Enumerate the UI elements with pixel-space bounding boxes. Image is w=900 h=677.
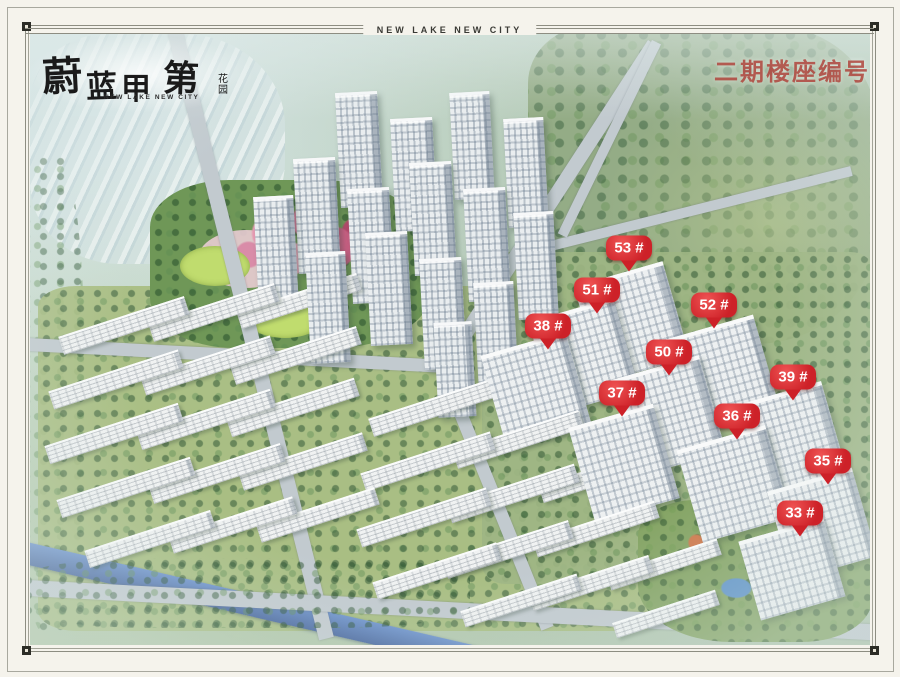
highrise-tower <box>513 211 559 320</box>
logo-suffix: 花园 <box>218 74 230 96</box>
canal-tree-band <box>30 558 470 628</box>
frame-corner-ornament <box>870 646 879 655</box>
aerial-rendering <box>30 34 870 645</box>
legend-title: 二期楼座编号 <box>695 52 870 87</box>
poster-page: 53 #51 #52 #38 #50 #37 #39 #36 #35 #33 #… <box>0 0 900 677</box>
logo-subtitle: NEW LAKE NEW CITY <box>104 94 199 101</box>
highrise-tower <box>449 91 495 200</box>
frame-corner-ornament <box>22 646 31 655</box>
frame-corner-ornament <box>870 22 879 31</box>
logo-character: 甲 <box>121 64 155 108</box>
project-logo: 蔚蓝甲第 花园 NEW LAKE NEW CITY <box>42 44 242 106</box>
frame-corner-ornament <box>22 22 31 31</box>
highrise-tower <box>365 231 413 346</box>
logo-character: 蔚 <box>41 43 88 103</box>
